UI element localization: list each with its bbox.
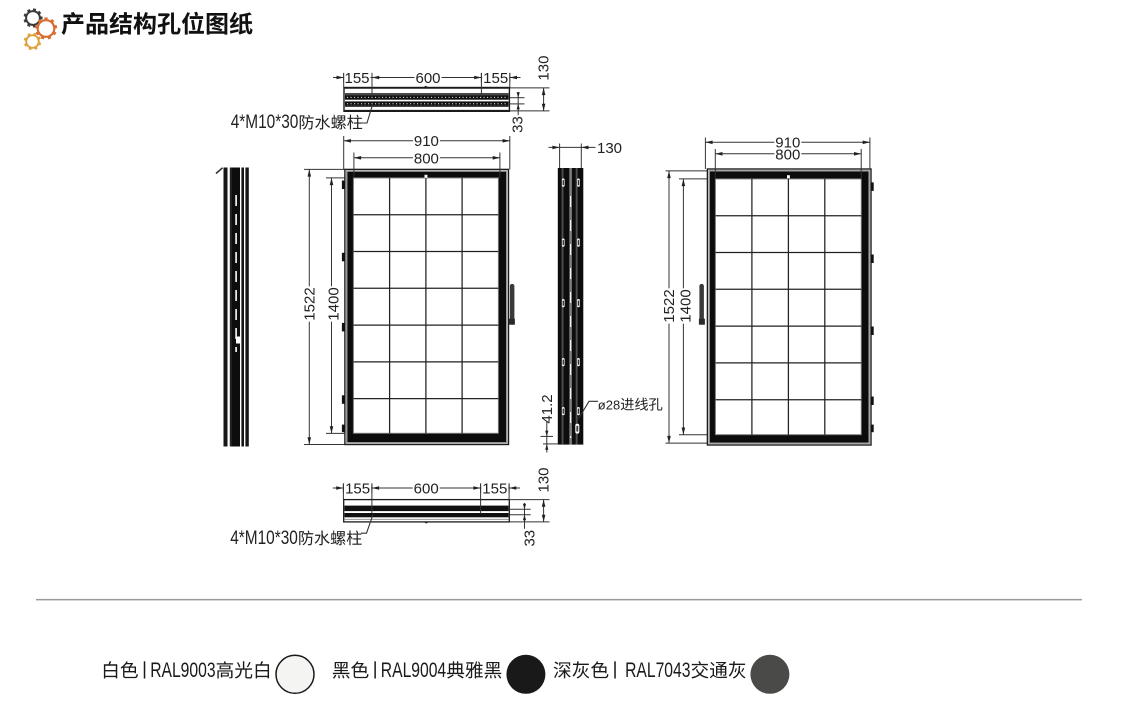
svg-text:RAL7043: RAL7043 [625, 658, 690, 682]
svg-text:155: 155 [482, 480, 507, 497]
svg-text:4*M10*30: 4*M10*30 [231, 110, 299, 132]
svg-text:1400: 1400 [678, 289, 695, 322]
svg-text:1522: 1522 [661, 289, 678, 322]
svg-text:130: 130 [536, 467, 553, 492]
svg-text:130: 130 [597, 140, 622, 157]
svg-text:4*M10*30: 4*M10*30 [230, 526, 298, 548]
svg-text:155: 155 [483, 70, 508, 87]
svg-text:41.2: 41.2 [539, 394, 556, 423]
svg-text:RAL9003: RAL9003 [150, 658, 215, 682]
svg-text:1522: 1522 [301, 287, 318, 320]
svg-text:1400: 1400 [326, 287, 343, 320]
svg-text:33: 33 [509, 116, 526, 133]
svg-text:800: 800 [414, 151, 439, 168]
svg-text:RAL9004: RAL9004 [381, 658, 446, 682]
svg-text:600: 600 [415, 70, 440, 87]
svg-text:155: 155 [345, 480, 370, 497]
svg-text:33: 33 [522, 530, 539, 547]
svg-text:910: 910 [414, 133, 439, 150]
svg-text:130: 130 [535, 56, 552, 81]
svg-text:155: 155 [344, 70, 369, 87]
svg-text:600: 600 [414, 480, 439, 497]
svg-text:ø28: ø28 [598, 398, 620, 413]
svg-text:800: 800 [775, 147, 800, 164]
